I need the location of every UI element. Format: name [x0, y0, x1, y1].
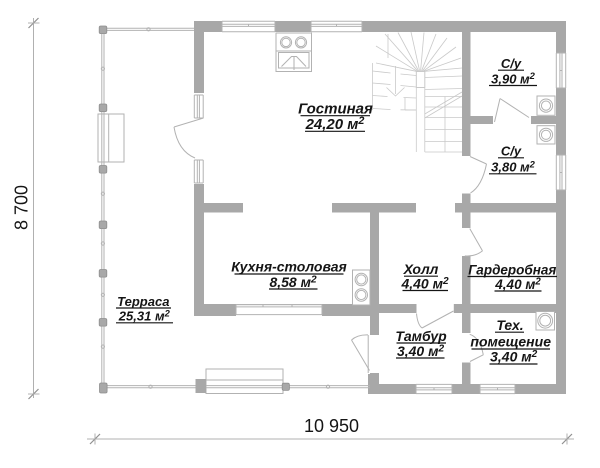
svg-text:3,40 м2: 3,40 м2 — [490, 349, 538, 365]
svg-text:8,58 м2: 8,58 м2 — [269, 274, 317, 290]
svg-text:25,31 м2: 25,31 м2 — [118, 308, 171, 324]
svg-text:10 950: 10 950 — [304, 416, 359, 436]
svg-text:24,20 м2: 24,20 м2 — [305, 115, 365, 133]
svg-text:3,90 м2: 3,90 м2 — [491, 70, 536, 86]
svg-text:3,80 м2: 3,80 м2 — [491, 158, 536, 174]
svg-text:Холл: Холл — [403, 261, 439, 277]
svg-text:С/у: С/у — [501, 143, 522, 158]
svg-text:Кухня-столовая: Кухня-столовая — [231, 259, 347, 275]
svg-text:Тех.: Тех. — [496, 317, 523, 333]
svg-text:помещение: помещение — [470, 334, 551, 350]
svg-text:С/у: С/у — [501, 56, 522, 71]
svg-text:3,40 м2: 3,40 м2 — [397, 343, 445, 359]
svg-text:Гардеробная: Гардеробная — [468, 262, 556, 277]
svg-text:Терраса: Терраса — [117, 294, 169, 309]
svg-text:4,40 м2: 4,40 м2 — [400, 276, 449, 292]
svg-text:8 700: 8 700 — [12, 185, 32, 230]
svg-text:4,40 м2: 4,40 м2 — [494, 277, 541, 292]
svg-text:Тамбур: Тамбур — [395, 328, 447, 344]
